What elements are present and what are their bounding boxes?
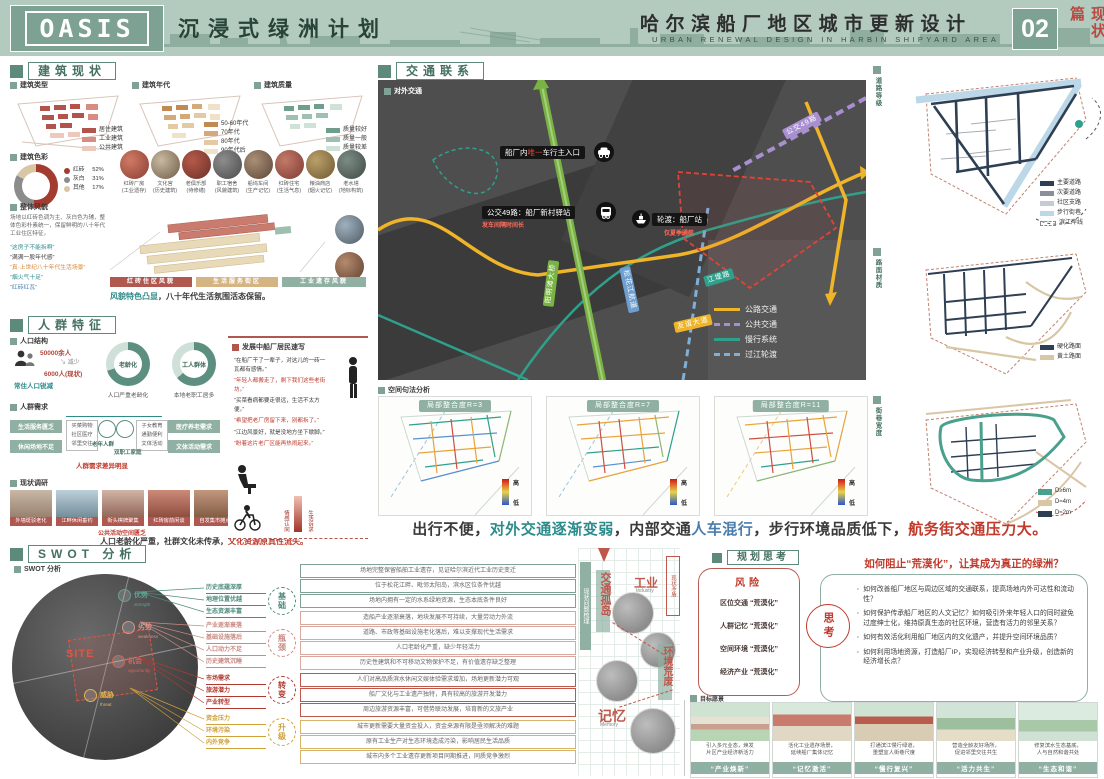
group2-icon: [116, 420, 134, 438]
map-tag: 建筑类型: [10, 80, 48, 90]
building-photo: [337, 150, 366, 179]
swot-detail: 场地内拥有一定的水系绿地资源，生态本底条件良好: [300, 594, 576, 608]
diagram-photo: [630, 708, 676, 754]
building-photo: [275, 150, 304, 179]
needs-box: 文体活动需求: [168, 440, 220, 453]
section-traffic: 交通联系: [378, 62, 484, 80]
tag-building-color: 建筑色彩: [10, 152, 48, 162]
building-photo: [120, 150, 149, 179]
swot-group-transform: 转变: [268, 676, 296, 704]
donut-aging: 老龄化: [106, 342, 150, 386]
section-swot: SWOT 分析: [10, 545, 146, 563]
planning-question-title: 如何阻止“荒漠化”，让其成为真正的绿洲？: [830, 556, 1098, 571]
resident-voice-panel: 发展中船厂居民速写 “在船厂干了一辈子，对这儿的一砖一瓦都有感情。” “年轻人都…: [228, 336, 368, 539]
oasis-logo: OASIS: [10, 5, 164, 52]
bar-label-hi: 情感认同: [282, 510, 290, 532]
section-square: [10, 65, 23, 78]
keyword-industry-en: Industry: [636, 588, 654, 594]
needs-cap: 人群需求差异明显: [76, 460, 128, 470]
section-planning: 规划思考: [712, 550, 799, 565]
syntax-map-r3: 局部整合度R=3 高 低: [378, 396, 532, 516]
swot-factor: 历史建筑沉睡: [206, 657, 266, 668]
section-building-status: 建筑现状: [10, 62, 116, 80]
swot-detail: 位于松花江畔、毗邻太阳岛，滨水区位条件优越: [300, 579, 576, 593]
vision-card: 引入多元业态，焕发片区产业经济新活力 “产业焕新”: [690, 702, 770, 778]
quad-opportunity: 机会opportunity: [112, 650, 150, 673]
swot-group-foundation: 基础: [268, 587, 296, 615]
ferry-note: 仅夏季通航: [664, 228, 694, 237]
question-item: ·如何利用场地资源，打造船厂IP，实现经济转型和产业升级，创造新的经济增长点？: [857, 648, 1077, 667]
swot-factor: 内外竞争: [206, 738, 266, 749]
swot-factor: 产业逐渐衰落: [206, 621, 266, 632]
vision-photo: [1019, 703, 1097, 741]
risk-item: 区位交通 “荒漠化”: [699, 598, 799, 608]
needs-list-2: 子女教育通勤便利文体活动: [136, 420, 168, 451]
axon-photo: [335, 215, 364, 244]
swot-detail: 周边旅游资源丰富，可借势联动发展，培育新的文旅产业: [300, 703, 576, 717]
swot-group-upgrade: 升级: [268, 718, 296, 746]
width-legend: D≥6m D≈4m D≈2m: [1038, 486, 1071, 519]
voice-title: 发展中船厂居民速写: [232, 342, 305, 352]
survey-photo: 红砖房前闲谈: [148, 490, 190, 526]
vision-card: 打通滨江慢行绿道，重塑宜人街巷尺度 “慢行复兴”: [854, 702, 934, 778]
car-icon: [594, 142, 614, 162]
survey-photo: 外墙斑驳老化: [10, 490, 52, 526]
pop-from: 50000余人: [40, 347, 71, 357]
tag-survey: 现状调研: [10, 478, 48, 488]
voice-quotes: “在船厂干了一辈子，对这儿的一砖一瓦都有感情。” “年轻人都搬走了，剩下我们这些…: [228, 354, 336, 449]
vision-photo: [855, 703, 933, 741]
swot-detail: 人们对高品质滨水休闲文娱体验需求增加，场地更新潜力可观: [300, 673, 576, 687]
section-title: 建筑现状: [28, 62, 116, 80]
needs-axis-line: [66, 416, 162, 417]
swot-factor: 人口动力不足: [206, 645, 266, 656]
resident-quotes: “这房子不能拆啊” “满满一股年代感” “真·上世纪八十年代生活场景” “烟火气…: [10, 243, 106, 293]
diagram-tag: 现状问题梳理: [580, 562, 591, 650]
tag-syntax: 空间句法分析: [378, 385, 430, 395]
swot-detail: 船厂文化与工业遗产独特，具有较高的旅游开发潜力: [300, 688, 576, 702]
cyclist-silhouette: [232, 502, 262, 532]
swot-factor: 生态资源丰富: [206, 607, 266, 618]
group1-icon: [98, 420, 116, 438]
traffic-map-tag: 对外交通: [384, 86, 422, 96]
issue-diagram: 现状问题梳理 现状矛盾 交通孤岛 工业 Industry 环境荒废 记忆 Mem…: [578, 548, 680, 776]
survey-photo: 江畔休闲垂钓: [56, 490, 98, 526]
surface-legend: 硬化路面 黄土路面: [1040, 342, 1081, 362]
surface-sketch: [886, 242, 1102, 390]
page-section-tag: 现状篇: [1066, 6, 1104, 56]
risk-item: 人群记忆 “荒漠化”: [699, 621, 799, 631]
needs-box: 医疗养老需求: [168, 420, 220, 433]
syntax-map-r11: 局部整合度R=11 高 低: [714, 396, 868, 516]
pop-cap: 常住人口锐减: [14, 380, 53, 390]
building-summary: 风貌特色凸显，八十年代生活氛围活态保留。: [110, 291, 270, 302]
building-photo: [306, 150, 335, 179]
swot-detail: 道路、市政等基础设施老化落后，难以支撑现代生活需求: [300, 626, 576, 640]
diagram-photo: [596, 660, 638, 702]
legend-building-type: 居住建筑 工业建筑 公共建筑: [82, 126, 123, 153]
quad-threat: 威胁threat: [84, 684, 114, 707]
needs-box: 休闲场地不足: [10, 440, 62, 453]
tag-pop-needs: 人群需求: [10, 402, 48, 412]
diagram-photo: [612, 592, 654, 634]
question-item: ·如何保护传承船厂地区的人文记忆？如何吸引外来年轻人口的同时避免过度绅士化，维持…: [857, 609, 1077, 628]
diagram-note: 现状矛盾: [666, 556, 680, 616]
vision-photo: [691, 703, 769, 741]
swot-group-bottleneck: 瓶颈: [268, 629, 296, 657]
swot-detail: 原有工业生产对生态环境造成污染，影响居民生活品质: [300, 735, 576, 749]
needs-box: 生活服务匮乏: [10, 420, 62, 433]
bar-label-lo: 生活诉求: [306, 510, 314, 532]
swot-detail: 人口老龄化严重，缺少年轻活力: [300, 641, 576, 655]
people-icon: [12, 348, 38, 374]
swot-detail: 城市内多个工业遗存更新项目同期推进，同质竞争激烈: [300, 750, 576, 764]
sentiment-gradient-bar: [294, 496, 302, 532]
syntax-scale: [670, 479, 677, 505]
swot-factor: 产业转型: [206, 698, 266, 709]
zone-bar-1: 红砖住区风貌: [110, 277, 192, 287]
width-tag: 街巷宽度: [872, 396, 882, 437]
question-item: ·如何改善船厂地区与周边区域的交通联系，提高场地内外可达性和流动性？: [857, 585, 1077, 604]
swot-detail: 场地完整保留船舶工业遗存，见证哈尔滨近代工业历史变迁: [300, 564, 576, 578]
vision-card: 活化工业遗存场景，延续船厂集体记忆 “记忆激活”: [772, 702, 852, 778]
roadgrade-legend: 主要道路 次要道路 社区支路 步行街巷 滨江岸线: [1040, 178, 1083, 228]
pop-trend: ↘ 减少: [60, 357, 80, 366]
vision-card: 修复滨水生态基底，人与自然和谐共处 “生态和谐”: [1018, 702, 1098, 778]
traffic-satellite-map: 对外交通 船厂内唯一车行主入口 公交49路：船厂新村驿站 发车间隔时间长 轮渡：…: [378, 80, 866, 380]
think-circle: 思考: [806, 604, 850, 648]
building-color-note: 场地以红砖色调为主、灰白色为辅，整体色彩朴素统一，保留鲜明的八十年代工业住区特征…: [10, 214, 110, 238]
axonometric-massing-sketch: [100, 212, 330, 276]
syntax-scale: [502, 479, 509, 505]
building-color-slices: 红砖 52% 灰白 31% 其他 17%: [64, 166, 104, 193]
group2-label: 双职工家庭: [114, 448, 142, 456]
syntax-map-r7: 局部整合度R=7 高 低: [546, 396, 700, 516]
questions-box: ·如何改善船厂地区与周边区域的交通联系，提高场地内外可达性和流动性？ ·如何保护…: [820, 574, 1088, 702]
bus-note: 发车间隔时间长: [482, 220, 524, 229]
pop-to: 6000人(现状): [44, 368, 82, 378]
survey-photo: 街头棋牌聚集: [102, 490, 144, 526]
ferry-icon: [632, 210, 650, 228]
plan-subtitle: 沉浸式绿洲计划: [178, 13, 388, 43]
building-photo: [151, 150, 180, 179]
zone-bar-3: 工业遗存风貌: [282, 277, 366, 287]
bus-stop-label: 公交49路：船厂新村驿站: [482, 206, 575, 219]
swot-factor: 环境污染: [206, 726, 266, 737]
keyword-traffic-island: 交通孤岛: [597, 572, 613, 616]
swot-factor: 基础设施落后: [206, 633, 266, 644]
quad-strength: 优势strength: [118, 584, 150, 607]
divider: [684, 700, 685, 776]
swot-factor: 历史底蕴深厚: [206, 583, 266, 594]
project-title-cn: 哈尔滨船厂地区城市更新设计: [640, 9, 972, 36]
section-population: 人群特征: [10, 316, 116, 334]
poster-board: OASIS 沉浸式绿洲计划 哈尔滨船厂地区城市更新设计 URBAN RENEWA…: [0, 0, 1104, 779]
tag-swot-sub: SWOT 分析: [14, 564, 61, 574]
legend-building-quality: 质量较好 质量一般 质量较差: [326, 126, 367, 153]
project-title-en: URBAN RENEWAL DESIGN IN HARBIN SHIPYARD …: [652, 35, 999, 44]
sitting-person-silhouette: [232, 464, 258, 494]
map-tag: 建筑年代: [132, 80, 170, 90]
page-number: 02: [1012, 8, 1058, 50]
roadgrade-tag: 道路等级: [872, 66, 882, 107]
swot-site-label: SITE: [66, 648, 94, 660]
standing-person-silhouette: [342, 356, 364, 400]
question-item: ·如何有效活化利用船厂地区内的文化遗产，并提升空间环境品质？: [857, 633, 1077, 643]
bus-icon: [596, 202, 616, 222]
keyword-memory-en: Memory: [600, 722, 618, 728]
swot-detail: 历史性建筑和不可移动文物保护不足，有价值遗存缺乏整理: [300, 656, 576, 670]
quad-weakness: 劣势weakness: [122, 616, 158, 639]
building-photo: [244, 150, 273, 179]
swot-factor: 旅游潜力: [206, 686, 266, 697]
ferry-label: 轮渡：船厂站: [652, 213, 707, 226]
oasis-logo-text: OASIS: [25, 11, 148, 46]
swot-factor: 地理位置优越: [206, 595, 266, 606]
donut-workers-cap: 本地老职工居多: [166, 390, 222, 399]
swot-detail: 城市更新需要大量资金投入，资金来源有限是亟须解决的难题: [300, 720, 576, 734]
risk-box: 风险 区位交通 “荒漠化” 人群记忆 “荒漠化” 空间环境 “荒漠化” 经济产业…: [698, 568, 800, 696]
tag-pop-structure: 人口结构: [10, 336, 48, 346]
risk-item: 空间环境 “荒漠化”: [699, 644, 799, 654]
donut-workers: 工人群体: [172, 342, 216, 386]
building-photo: [213, 150, 242, 179]
group1-label: 老年人群: [92, 440, 114, 448]
entrance-label: 船厂内唯一车行主入口: [500, 146, 585, 159]
vision-photo: [937, 703, 1015, 741]
swot-factor: 市场需求: [206, 674, 266, 685]
donut-aging-cap: 人口严重老龄化: [100, 390, 156, 399]
map-tag: 建筑质量: [254, 80, 292, 90]
vision-photo: [773, 703, 851, 741]
building-photo: [182, 150, 211, 179]
header-bar: OASIS 沉浸式绿洲计划 哈尔滨船厂地区城市更新设计 URBAN RENEWA…: [0, 0, 1104, 56]
risk-item: 经济产业 “荒漠化”: [699, 667, 799, 677]
down-arrow: [598, 548, 610, 562]
surface-tag: 路面材质: [872, 248, 882, 289]
traffic-legend: 公路交通 公共交通 慢行系统 过江轮渡: [714, 302, 777, 362]
vision-card: 营造全龄友好场所，促进邻里交往共生 “活力共生”: [936, 702, 1016, 778]
syntax-scale: [838, 479, 845, 505]
tag-axon: 整体风貌: [10, 202, 48, 212]
swot-detail: 造船产业逐渐衰落，地块发展不可持续，大量劳动力外流: [300, 611, 576, 625]
swot-factor: 资金压力: [206, 714, 266, 725]
zone-bar-2: 生活服务街区: [196, 277, 278, 287]
